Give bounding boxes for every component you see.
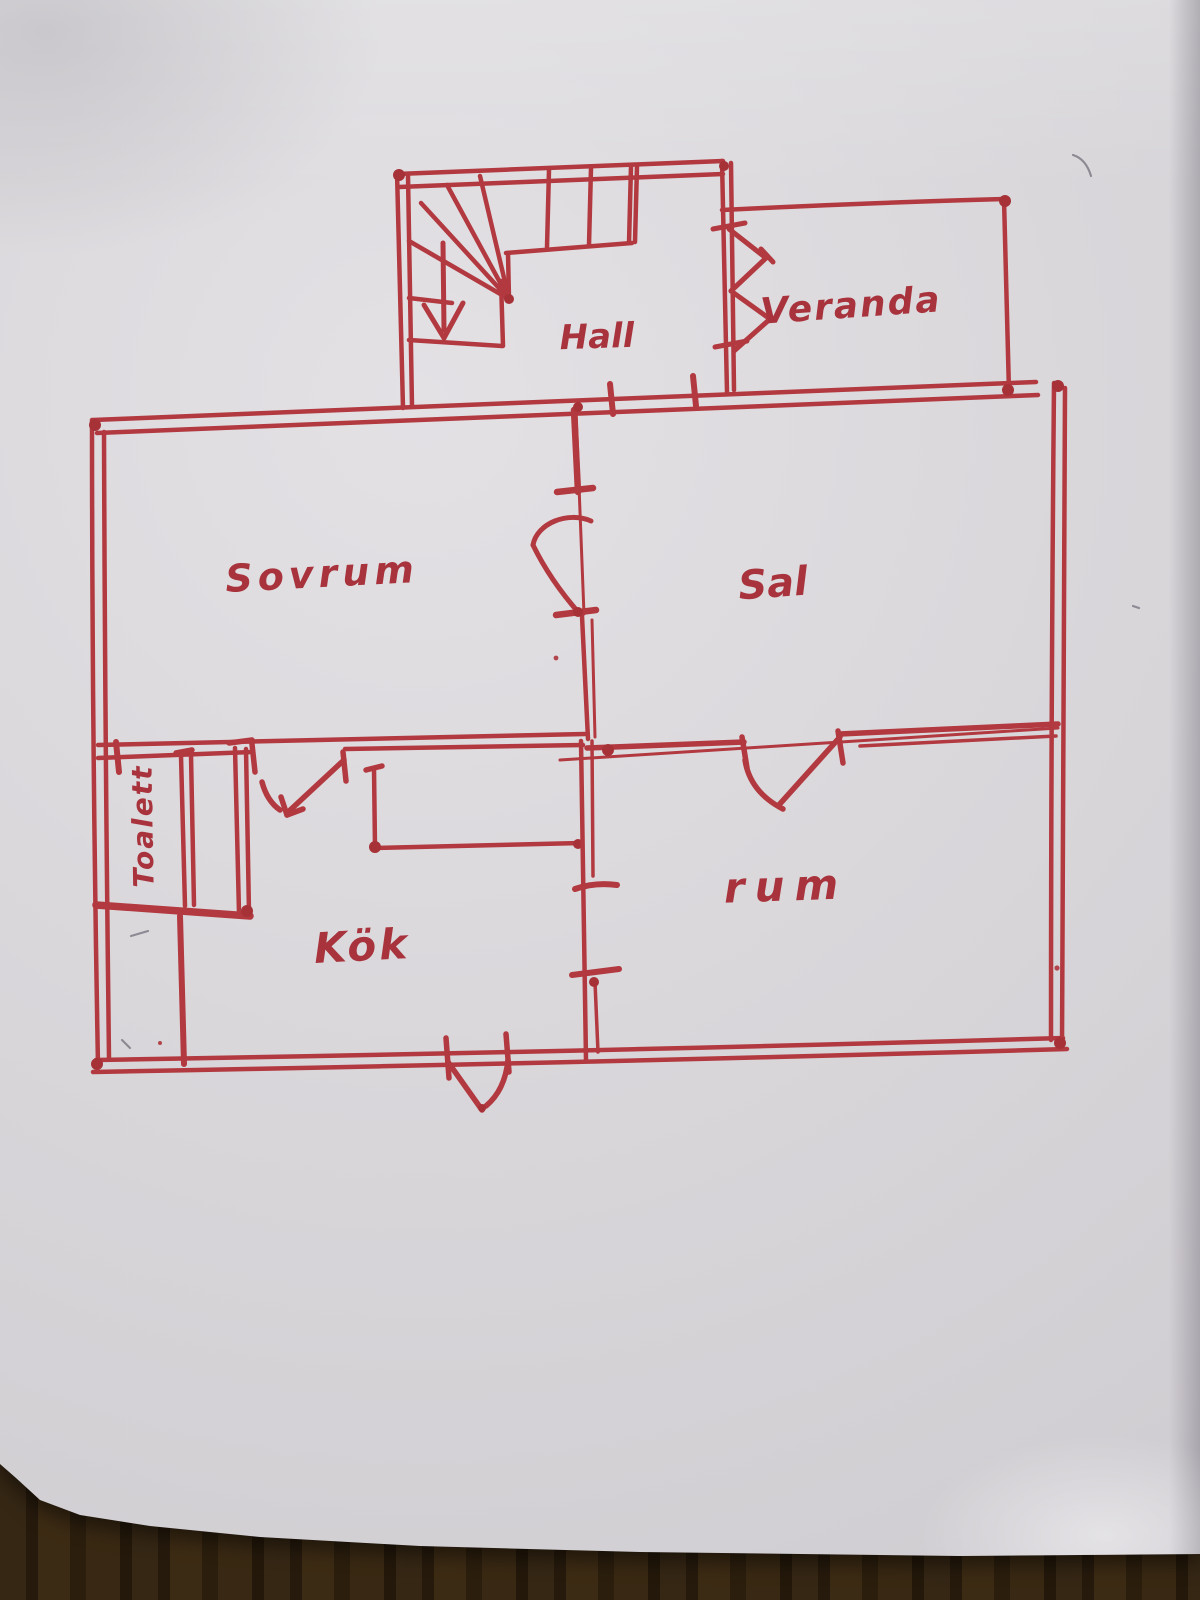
pencil-marks bbox=[122, 155, 1139, 1048]
room-label-hall: Hall bbox=[559, 316, 635, 359]
room-label-rum: rum bbox=[723, 859, 849, 912]
room-label-toalett: Toalett bbox=[125, 764, 160, 888]
toilet-door-swing-icon bbox=[252, 744, 346, 815]
kitchen-door-swing-icon bbox=[446, 1034, 509, 1112]
interior-wall-vertical-lower bbox=[572, 741, 619, 1060]
ink-specks bbox=[158, 656, 1060, 1045]
interior-wall-horizontal bbox=[98, 724, 1058, 772]
toilet-walls bbox=[96, 740, 253, 1064]
photo-scene: Hall Veranda Sovrum Sal Toalett Kök rum bbox=[0, 0, 1200, 1600]
room-label-sal: Sal bbox=[737, 559, 810, 610]
paper-wrap: Hall Veranda Sovrum Sal Toalett Kök rum bbox=[0, 0, 1200, 1600]
floor-plan-drawing bbox=[0, 0, 1200, 1600]
stairs-down-arrow-icon bbox=[424, 243, 463, 338]
room-label-kok: Kök bbox=[313, 919, 411, 973]
paper-sheet: Hall Veranda Sovrum Sal Toalett Kök rum bbox=[0, 0, 1200, 1600]
interior-wall-vertical-upper bbox=[556, 402, 596, 739]
closet-walls bbox=[366, 766, 583, 853]
